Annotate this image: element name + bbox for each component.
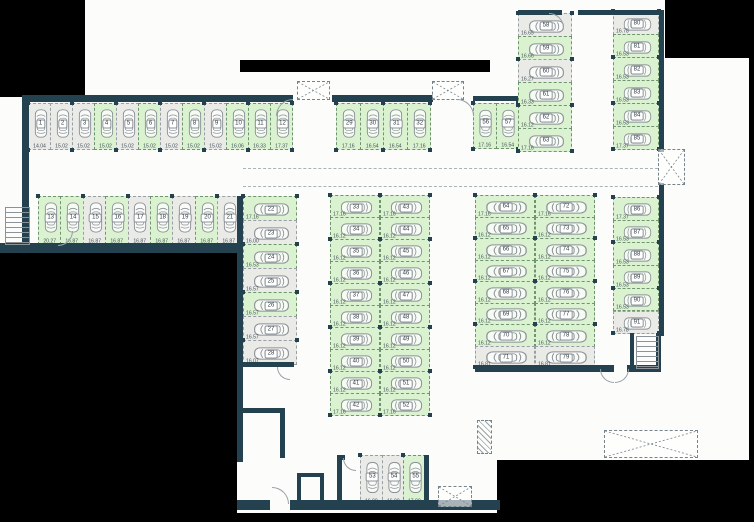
space-number: 88 — [631, 251, 644, 260]
stairs-icon — [5, 207, 30, 245]
column-marker — [290, 148, 294, 152]
parking-space-78[interactable]: 7816.12 — [535, 324, 595, 347]
space-number: 26 — [265, 301, 278, 310]
space-number: 84 — [631, 112, 644, 121]
column-marker — [428, 369, 432, 373]
column-marker — [428, 148, 432, 152]
column-marker — [428, 193, 432, 197]
door-swing-icon — [343, 458, 356, 471]
space-area: 16.78 — [616, 328, 629, 333]
column-marker — [295, 194, 299, 198]
parking-space-42[interactable]: 4217.16 — [330, 393, 380, 416]
column-marker — [570, 149, 574, 153]
space-number: 80 — [631, 20, 644, 29]
space-number: 30 — [366, 119, 379, 128]
space-number: 89 — [631, 273, 644, 282]
space-number: 2 — [58, 119, 67, 128]
column-marker — [611, 331, 615, 335]
vent-shaft-icon — [438, 486, 472, 507]
space-number: 36 — [350, 269, 363, 278]
column-marker — [570, 11, 574, 15]
space-number: 67 — [500, 267, 513, 276]
column-marker — [593, 193, 597, 197]
space-number: 82 — [631, 66, 644, 75]
wall — [337, 460, 342, 505]
space-area: 16.54 — [498, 143, 516, 148]
column-marker — [378, 237, 382, 241]
column-marker — [516, 103, 520, 107]
parking-space-67[interactable]: 6716.12 — [475, 260, 535, 283]
space-number: 45 — [400, 247, 413, 256]
space-area: 15.02 — [207, 144, 225, 149]
parking-space-64[interactable]: 6417.16 — [475, 195, 535, 218]
space-number: 64 — [500, 203, 513, 212]
service-shaft-icon — [477, 420, 492, 454]
space-number: 77 — [560, 310, 573, 319]
parking-space-82[interactable]: 8216.53 — [613, 57, 659, 81]
vent-shaft-icon — [432, 81, 464, 100]
space-area: 15.02 — [185, 144, 203, 149]
parking-space-33[interactable]: 3317.16 — [330, 195, 380, 218]
parking-space-62[interactable]: 6216.12 — [518, 105, 572, 129]
space-number: 16 — [112, 213, 125, 222]
space-number: 42 — [350, 401, 363, 410]
space-number: 20 — [201, 213, 214, 222]
parking-space-51[interactable]: 5116.12 — [380, 371, 430, 394]
space-number: 12 — [276, 119, 289, 128]
wall — [237, 500, 270, 510]
stairs-icon — [636, 336, 659, 369]
space-number: 71 — [500, 353, 513, 362]
parking-space-49[interactable]: 4916.12 — [380, 327, 430, 350]
space-number: 27 — [265, 325, 278, 334]
space-number: 8 — [190, 119, 199, 128]
space-number: 86 — [631, 205, 644, 214]
space-area: 17.16 — [383, 410, 396, 415]
parking-space-48[interactable]: 4816.12 — [380, 305, 430, 328]
column-marker — [533, 279, 537, 283]
space-number: 51 — [400, 379, 413, 388]
parking-space-61[interactable]: 6116.33 — [518, 82, 572, 106]
column-marker — [428, 413, 432, 417]
column-marker — [36, 194, 40, 198]
space-number: 60 — [540, 68, 553, 77]
parking-space-75[interactable]: 7516.12 — [535, 260, 595, 283]
space-number: 38 — [350, 313, 363, 322]
column-marker — [473, 236, 477, 240]
space-number: 46 — [400, 269, 413, 278]
space-number: 62 — [540, 114, 553, 123]
wall — [0, 243, 241, 253]
space-area: 17.16 — [333, 410, 346, 415]
space-number: 10 — [232, 119, 245, 128]
space-number: 57 — [502, 119, 515, 128]
column-marker — [246, 148, 250, 152]
parking-space-35[interactable]: 3516.12 — [330, 239, 380, 262]
column-marker — [533, 193, 537, 197]
space-area: 17.16 — [339, 144, 358, 149]
parking-space-84[interactable]: 8416.53 — [613, 103, 659, 127]
wall — [475, 365, 614, 372]
parking-space-32[interactable]: 3217.16 — [407, 103, 432, 150]
space-number: 78 — [560, 332, 573, 341]
parking-space-39[interactable]: 3916.12 — [330, 327, 380, 350]
space-number: 59 — [540, 45, 553, 54]
column-marker — [295, 290, 299, 294]
space-number: 7 — [168, 119, 177, 128]
space-number: 32 — [413, 119, 426, 128]
space-number: 17 — [134, 213, 147, 222]
column-marker — [378, 281, 382, 285]
column-marker — [611, 147, 615, 151]
space-number: 91 — [631, 319, 644, 328]
wall — [237, 196, 243, 462]
column-marker — [471, 147, 475, 151]
column-marker — [611, 55, 615, 59]
space-number: 73 — [560, 224, 573, 233]
column-marker — [158, 148, 162, 152]
space-area: 17.37 — [616, 144, 629, 149]
parking-space-91: 9116.78 — [613, 311, 659, 335]
wall — [659, 12, 664, 152]
space-number: 5 — [124, 119, 133, 128]
column-marker — [593, 322, 597, 326]
wall — [280, 408, 285, 458]
column-marker — [428, 237, 432, 241]
space-number: 66 — [500, 246, 513, 255]
parking-space-86[interactable]: 8617.37 — [613, 197, 659, 221]
space-area: 17.37 — [273, 144, 291, 149]
plan-canvas: 114.04215.02315.02415.02515.02615.02715.… — [0, 0, 754, 522]
parking-space-65[interactable]: 6516.12 — [475, 217, 535, 240]
space-number: 50 — [400, 357, 413, 366]
space-area: 15.02 — [163, 144, 181, 149]
parking-space-81[interactable]: 8116.53 — [613, 34, 659, 58]
parking-space-66[interactable]: 6616.12 — [475, 238, 535, 261]
space-number: 72 — [560, 203, 573, 212]
column-marker — [533, 236, 537, 240]
parking-space-85[interactable]: 8517.37 — [613, 126, 659, 150]
column-marker — [328, 369, 332, 373]
space-number: 35 — [350, 247, 363, 256]
wall — [22, 95, 293, 102]
column-marker — [81, 194, 85, 198]
space-number: 83 — [631, 89, 644, 98]
space-number: 87 — [631, 228, 644, 237]
parking-space-60: 6016.27 — [518, 59, 572, 83]
parking-space-55[interactable]: 5517.00 — [403, 455, 426, 505]
space-number: 61 — [540, 91, 553, 100]
column-marker — [126, 194, 130, 198]
parking-space-70[interactable]: 7016.12 — [475, 324, 535, 347]
parking-space-26[interactable]: 2616.57 — [243, 292, 297, 317]
space-number: 28 — [265, 349, 278, 358]
column-marker — [378, 193, 382, 197]
space-number: 90 — [631, 296, 644, 305]
parking-space-68[interactable]: 6816.12 — [475, 281, 535, 304]
space-number: 34 — [350, 225, 363, 234]
column-marker — [611, 195, 615, 199]
parking-space-73[interactable]: 7316.12 — [535, 217, 595, 240]
parking-space-77[interactable]: 7716.12 — [535, 303, 595, 326]
column-marker — [378, 413, 382, 417]
space-number: 3 — [80, 119, 89, 128]
space-number: 76 — [560, 289, 573, 298]
column-marker — [295, 242, 299, 246]
parking-space-47[interactable]: 4716.12 — [380, 283, 430, 306]
column-marker — [401, 453, 405, 457]
space-area: 16.33 — [251, 144, 269, 149]
parking-space-43[interactable]: 4317.16 — [380, 195, 430, 218]
space-area: 14.04 — [31, 144, 49, 149]
parking-space-36[interactable]: 3616.12 — [330, 261, 380, 284]
space-area: 15.02 — [75, 144, 93, 149]
space-number: 52 — [400, 401, 413, 410]
space-number: 44 — [400, 225, 413, 234]
parking-space-50[interactable]: 5016.12 — [380, 349, 430, 372]
door-swing-icon — [615, 369, 629, 383]
space-number: 68 — [500, 289, 513, 298]
space-area: 16.54 — [386, 144, 405, 149]
space-number: 39 — [350, 335, 363, 344]
parking-space-44[interactable]: 4416.12 — [380, 217, 430, 240]
space-number: 43 — [400, 203, 413, 212]
vent-shaft-icon — [658, 149, 685, 185]
column-marker — [381, 148, 385, 152]
parking-space-59[interactable]: 5916.66 — [518, 36, 572, 60]
column-marker — [593, 236, 597, 240]
parking-space-74[interactable]: 7416.12 — [535, 238, 595, 261]
wall — [237, 408, 285, 413]
column-marker — [473, 193, 477, 197]
door-swing-icon — [277, 367, 290, 380]
space-number: 23 — [265, 229, 278, 238]
space-area: 15.02 — [53, 144, 71, 149]
column-marker — [328, 413, 332, 417]
parking-space-37[interactable]: 3716.12 — [330, 283, 380, 306]
door-swing-icon — [600, 369, 614, 383]
parking-space-63[interactable]: 6317.16 — [518, 128, 572, 152]
door-swing-icon — [272, 487, 289, 504]
column-marker — [516, 149, 520, 153]
column-marker — [611, 240, 615, 244]
lane-dash — [243, 186, 658, 187]
parking-space-23: 2316.00 — [243, 220, 297, 245]
space-number: 31 — [390, 119, 403, 128]
column-marker — [473, 279, 477, 283]
column-marker — [328, 193, 332, 197]
parking-space-72[interactable]: 7217.16 — [535, 195, 595, 218]
column-marker — [516, 57, 520, 61]
space-number: 55 — [409, 473, 422, 482]
space-number: 48 — [400, 313, 413, 322]
parking-space-46[interactable]: 4616.12 — [380, 261, 430, 284]
parking-space-76[interactable]: 7616.12 — [535, 281, 595, 304]
space-number: 47 — [400, 291, 413, 300]
space-number: 81 — [631, 43, 644, 52]
column-marker — [533, 322, 537, 326]
column-marker — [202, 148, 206, 152]
parking-space-83[interactable]: 8316.53 — [613, 80, 659, 104]
space-number: 41 — [350, 379, 363, 388]
space-area: 16.54 — [362, 144, 381, 149]
space-number: 37 — [350, 291, 363, 300]
parking-space-24[interactable]: 2416.53 — [243, 244, 297, 269]
space-area: 16.06 — [229, 144, 247, 149]
space-number: 13 — [44, 213, 57, 222]
background-mask — [0, 253, 237, 522]
parking-space-89[interactable]: 8916.53 — [613, 265, 659, 289]
column-marker — [428, 281, 432, 285]
wall — [332, 95, 433, 102]
lane-dash — [243, 168, 658, 169]
space-number: 40 — [350, 357, 363, 366]
space-number: 85 — [631, 135, 644, 144]
column-marker — [70, 148, 74, 152]
space-number: 69 — [500, 310, 513, 319]
space-number: 33 — [350, 203, 363, 212]
wall — [578, 10, 664, 15]
background-mask — [665, 0, 754, 58]
parking-space-38[interactable]: 3816.12 — [330, 305, 380, 328]
space-number: 15 — [89, 213, 102, 222]
background-mask — [0, 513, 754, 522]
column-marker — [611, 286, 615, 290]
parking-space-25: 2516.57 — [243, 268, 297, 293]
space-number: 14 — [67, 213, 80, 222]
column-marker — [334, 148, 338, 152]
space-number: 6 — [146, 119, 155, 128]
space-number: 25 — [265, 277, 278, 286]
parking-space-40[interactable]: 4016.12 — [330, 349, 380, 372]
column-marker — [328, 237, 332, 241]
column-marker — [611, 101, 615, 105]
parking-space-88[interactable]: 8816.53 — [613, 242, 659, 266]
wall — [424, 455, 429, 505]
space-number: 24 — [265, 253, 278, 262]
column-marker — [170, 194, 174, 198]
column-marker — [358, 453, 362, 457]
column-marker — [328, 281, 332, 285]
space-number: 21 — [224, 213, 237, 222]
background-mask — [240, 60, 490, 72]
parking-space-41[interactable]: 4116.12 — [330, 371, 380, 394]
space-number: 56 — [479, 119, 492, 128]
column-marker — [378, 325, 382, 329]
space-number: 74 — [560, 246, 573, 255]
column-marker — [593, 279, 597, 283]
column-marker — [471, 101, 475, 105]
parking-space-87[interactable]: 8716.53 — [613, 220, 659, 244]
space-area: 17.16 — [521, 146, 534, 151]
space-area: 15.02 — [97, 144, 115, 149]
space-number: 19 — [179, 213, 192, 222]
parking-space-34[interactable]: 3416.12 — [330, 217, 380, 240]
space-area: 15.02 — [141, 144, 159, 149]
space-number: 63 — [540, 137, 553, 146]
space-number: 1 — [36, 119, 45, 128]
vent-shaft-icon — [297, 81, 330, 100]
space-area: 15.02 — [119, 144, 137, 149]
parking-space-90[interactable]: 9016.53 — [613, 288, 659, 312]
space-number: 18 — [156, 213, 169, 222]
space-number: 70 — [500, 332, 513, 341]
column-marker — [114, 148, 118, 152]
column-marker — [570, 103, 574, 107]
space-number: 4 — [102, 119, 111, 128]
space-number: 9 — [212, 119, 221, 128]
space-area: 17.16 — [476, 143, 494, 148]
wall — [473, 96, 518, 101]
space-number: 22 — [265, 205, 278, 214]
space-area: 17.16 — [409, 144, 428, 149]
background-mask — [0, 0, 85, 97]
space-number: 29 — [343, 119, 356, 128]
column-marker — [215, 194, 219, 198]
background-mask — [749, 58, 754, 462]
column-marker — [570, 57, 574, 61]
space-number: 79 — [560, 353, 573, 362]
parking-space-52[interactable]: 5217.16 — [380, 393, 430, 416]
space-number: 75 — [560, 267, 573, 276]
parking-space-27: 2716.57 — [243, 316, 297, 341]
column-marker — [295, 338, 299, 342]
space-number: 65 — [500, 224, 513, 233]
parking-space-58: 5816.65 — [518, 13, 572, 37]
vent-shaft-icon — [604, 430, 698, 458]
parking-space-45[interactable]: 4516.12 — [380, 239, 430, 262]
space-number: 11 — [254, 119, 266, 128]
column-marker — [378, 369, 382, 373]
parking-space-57[interactable]: 5716.54 — [496, 103, 520, 149]
parking-space-22[interactable]: 2217.16 — [243, 196, 297, 221]
parking-space-69[interactable]: 6916.12 — [475, 303, 535, 326]
space-number: 49 — [400, 335, 413, 344]
column-marker — [428, 325, 432, 329]
column-marker — [328, 325, 332, 329]
wall — [659, 183, 664, 336]
parking-floor-plan: 114.04215.02315.02415.02515.02615.02715.… — [0, 0, 754, 522]
column-marker — [473, 322, 477, 326]
